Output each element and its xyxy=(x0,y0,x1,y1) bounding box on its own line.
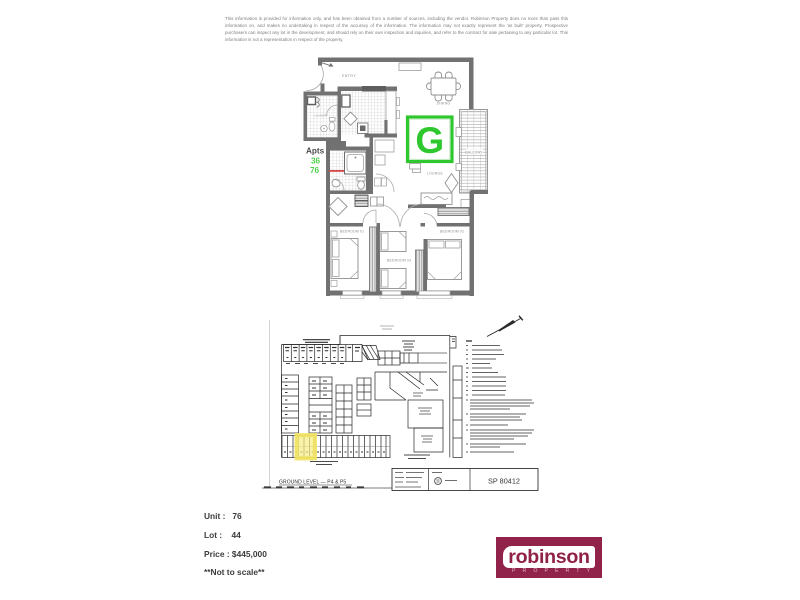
svg-text:SP 80412: SP 80412 xyxy=(488,477,520,486)
svg-text:76: 76 xyxy=(310,166,320,175)
svg-text:36: 36 xyxy=(311,157,321,166)
svg-text:GROUND LEVEL — P4 & P5: GROUND LEVEL — P4 & P5 xyxy=(279,480,346,486)
svg-text:BALCONY: BALCONY xyxy=(465,151,483,155)
svg-text:Apts: Apts xyxy=(306,147,325,156)
svg-text:ENTRY: ENTRY xyxy=(342,74,356,78)
svg-text:BEDROOM 01: BEDROOM 01 xyxy=(340,230,364,234)
svg-text:BEDROOM 03: BEDROOM 03 xyxy=(387,259,411,263)
svg-text:LAUNDRY: LAUNDRY xyxy=(314,114,328,118)
svg-text:BEDROOM 02: BEDROOM 02 xyxy=(440,230,464,234)
svg-text:LOUNGE: LOUNGE xyxy=(427,172,444,176)
svg-text:G: G xyxy=(415,120,444,161)
svg-text:DINING: DINING xyxy=(437,102,451,106)
